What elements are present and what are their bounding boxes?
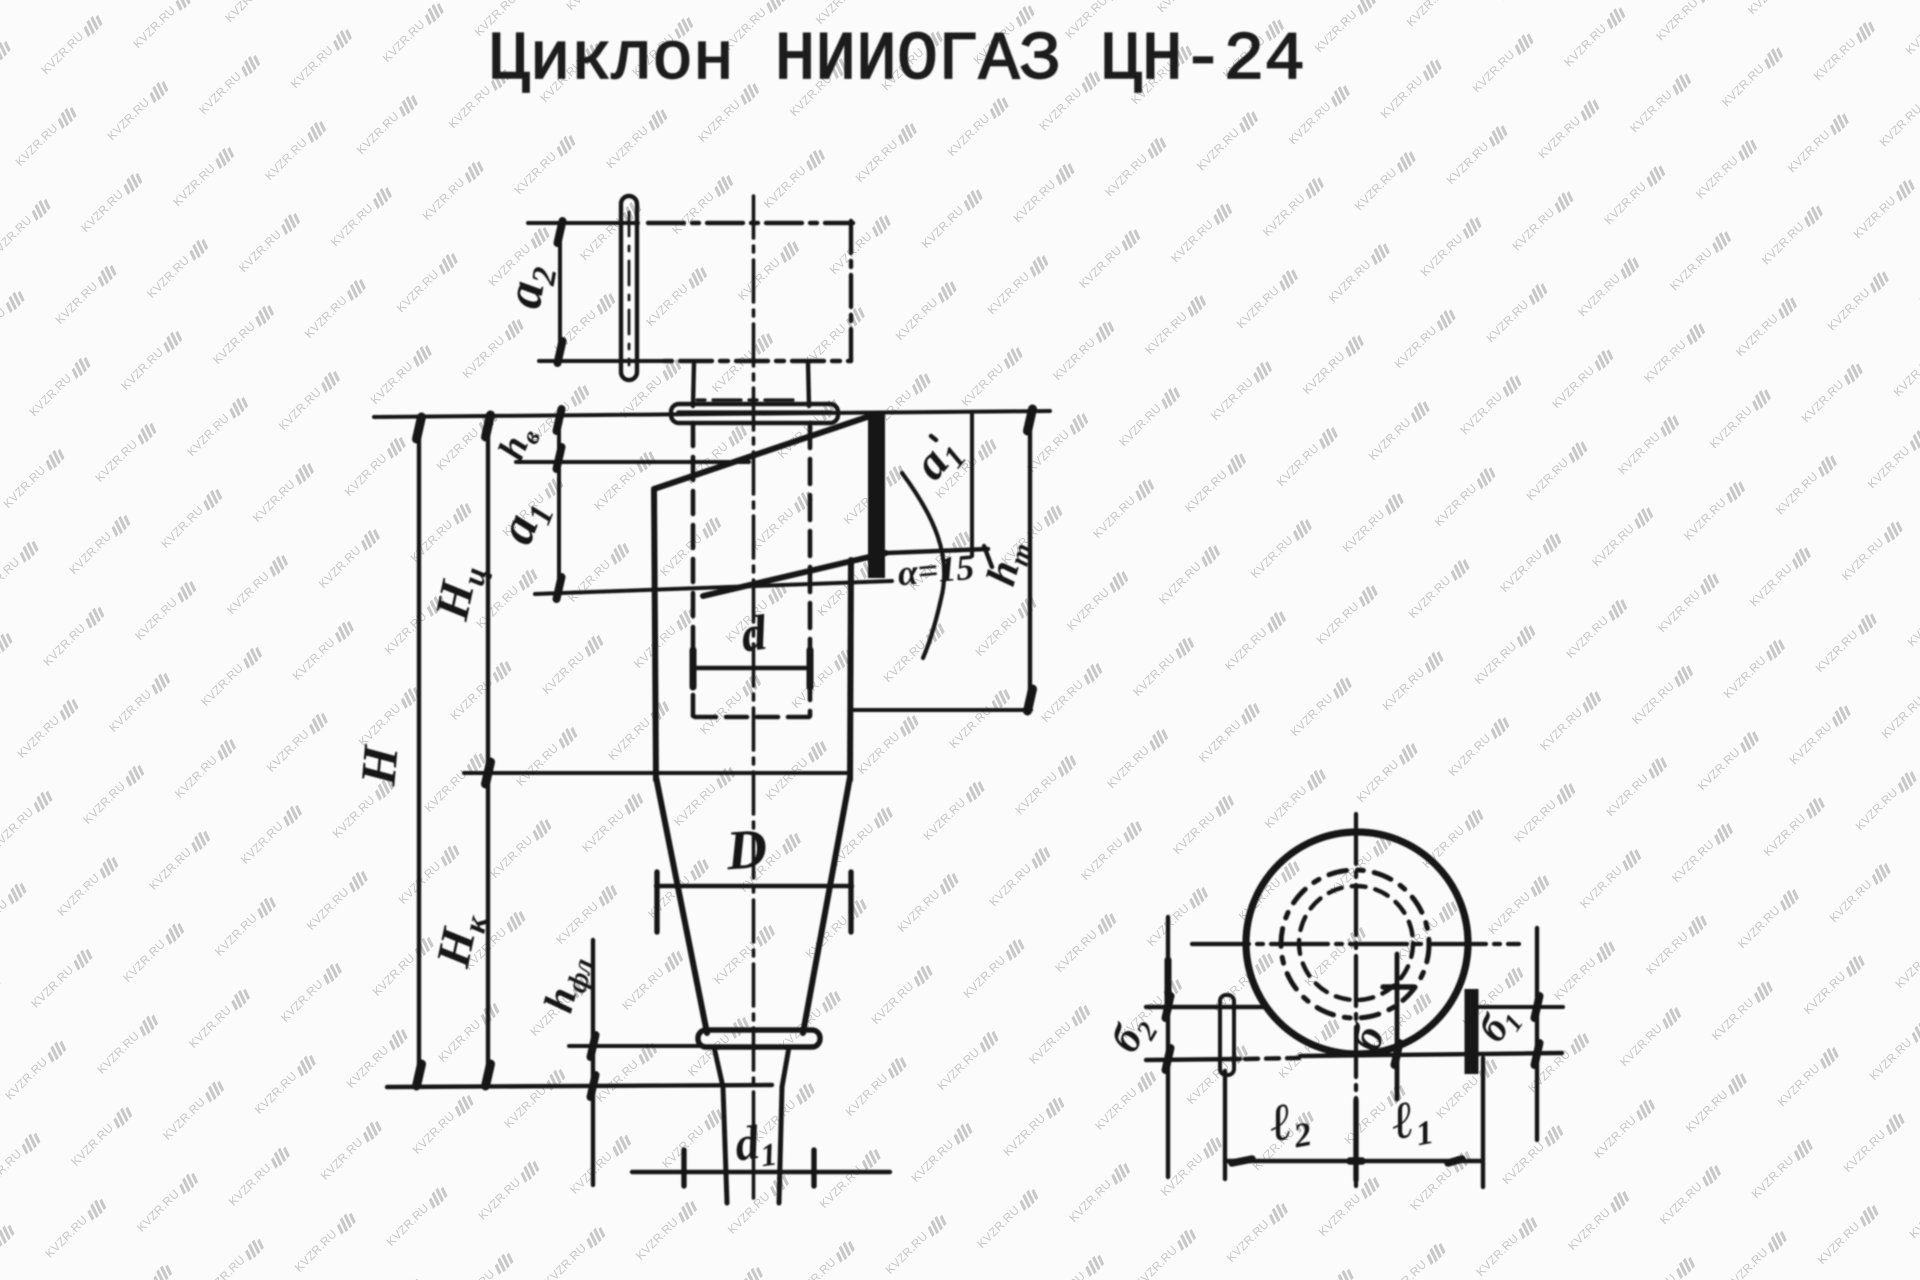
svg-text:Циклон НИИОГАЗ ЦН-24: Циклон НИИОГАЗ ЦН-24 [489, 22, 1305, 99]
svg-text:D: D [723, 818, 769, 883]
svg-text:α=15: α=15 [896, 547, 976, 594]
svg-text:Н: Н [349, 742, 408, 789]
